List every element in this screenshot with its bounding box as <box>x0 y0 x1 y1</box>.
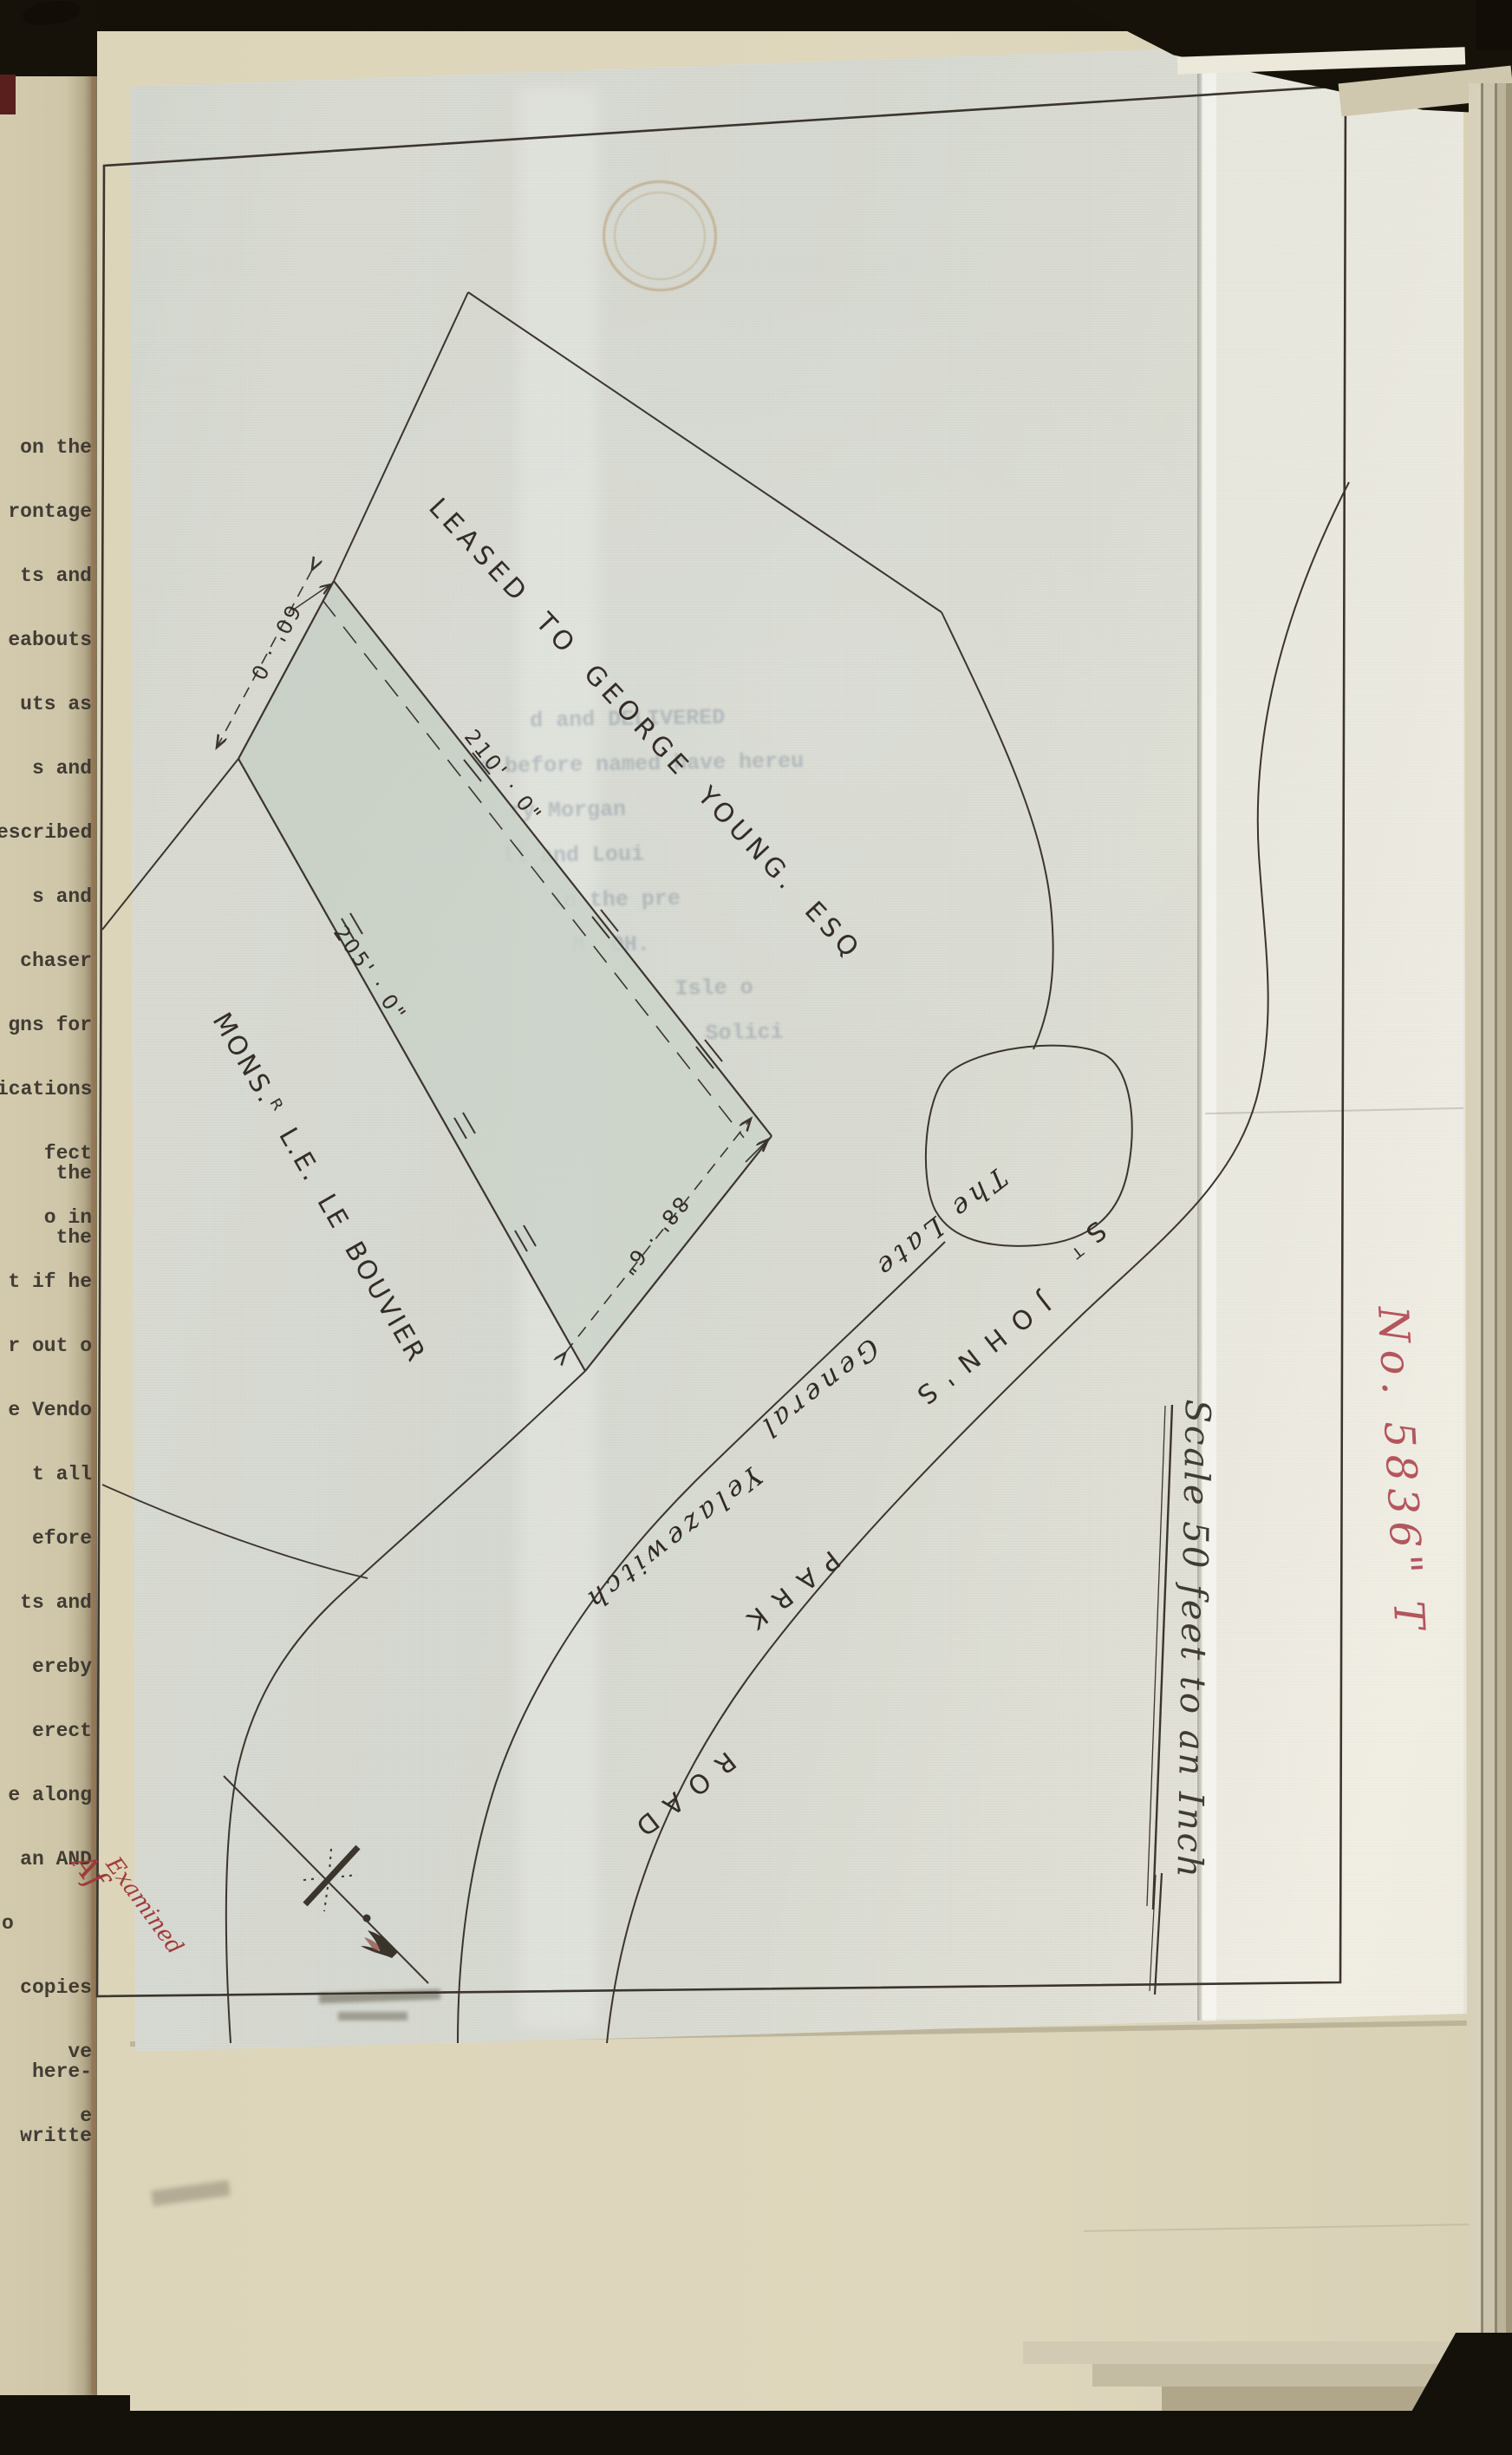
left-page-fragment: t if he <box>0 1272 92 1292</box>
fore-edge-strip <box>1497 83 1506 2381</box>
left-page-fragment: o <box>2 1914 31 1934</box>
ink-smudge <box>338 2012 407 2021</box>
left-page-fragment: chaser <box>0 951 92 971</box>
ink-smudge <box>319 1989 440 2004</box>
left-page-fragment: ereby <box>0 1657 92 1677</box>
left-page-fragment: s and <box>0 887 92 907</box>
bleedthrough-line: ll and Loui <box>501 842 645 870</box>
previous-page-edge: on the rontage ts and eabouts uts as s a… <box>0 26 97 2400</box>
left-page-fragment: rontage <box>0 502 92 522</box>
left-page-fragment: ve here- <box>0 2042 92 2082</box>
left-page-fragment: on the <box>0 438 92 458</box>
left-page-fragment: ts and <box>0 1593 92 1613</box>
fore-edge-strip <box>1483 83 1495 2381</box>
left-page-fragment: o in the <box>0 1208 92 1248</box>
left-page-fragment: e along <box>0 1786 92 1805</box>
left-page-fragment: s and <box>0 759 92 779</box>
bleedthrough-line: Isle o <box>675 975 753 1002</box>
fore-edge-strip <box>1506 83 1512 2381</box>
left-page-fragment: escribed <box>0 823 92 843</box>
scan-background-bottomleft <box>0 2395 130 2455</box>
left-page-fragment: ications <box>0 1080 92 1100</box>
left-page-fragment: copies <box>0 1978 92 1998</box>
binding-mark <box>0 75 16 114</box>
left-page-fragment: efore <box>0 1529 92 1549</box>
scan-background-corner <box>1476 0 1512 50</box>
bleedthrough-line: Solici <box>705 1020 784 1047</box>
embossed-stamp-inner-ring <box>608 186 711 286</box>
fold-out-strip <box>1202 38 1463 2019</box>
left-page-fragment: uts as <box>0 695 92 715</box>
fore-edge-strip <box>1469 83 1481 2381</box>
bleedthrough-line: in the pre <box>551 886 681 914</box>
bleedthrough-line: M. OH. <box>572 931 651 958</box>
scan-background-bottom <box>0 2411 1512 2455</box>
left-page-fragment: e writte <box>0 2106 92 2146</box>
embossed-stamp <box>596 173 725 298</box>
bottom-page-stack <box>1023 2341 1512 2364</box>
left-page-fragment: gns for <box>0 1015 92 1035</box>
left-page-fragment: erect <box>0 1721 92 1741</box>
paper-sheen <box>518 87 598 2029</box>
scanned-deed-book-page: { "colors": { "red_ink": "#a83f3a", "red… <box>0 0 1512 2455</box>
left-page-fragment: e Vendo <box>0 1401 92 1420</box>
left-page-fragment: t all <box>0 1465 92 1485</box>
page-edge-highlight <box>91 52 94 2393</box>
left-page-fragment: r out o <box>0 1336 92 1356</box>
scale-note: Scale 50 feet to an Inch <box>1169 1399 1217 1880</box>
left-page-fragment: eabouts <box>0 630 92 650</box>
left-page-fragment: fect the <box>0 1144 92 1184</box>
bleedthrough-line: e before named have hereu <box>479 748 805 780</box>
left-page-fragment: ts and <box>0 566 92 586</box>
